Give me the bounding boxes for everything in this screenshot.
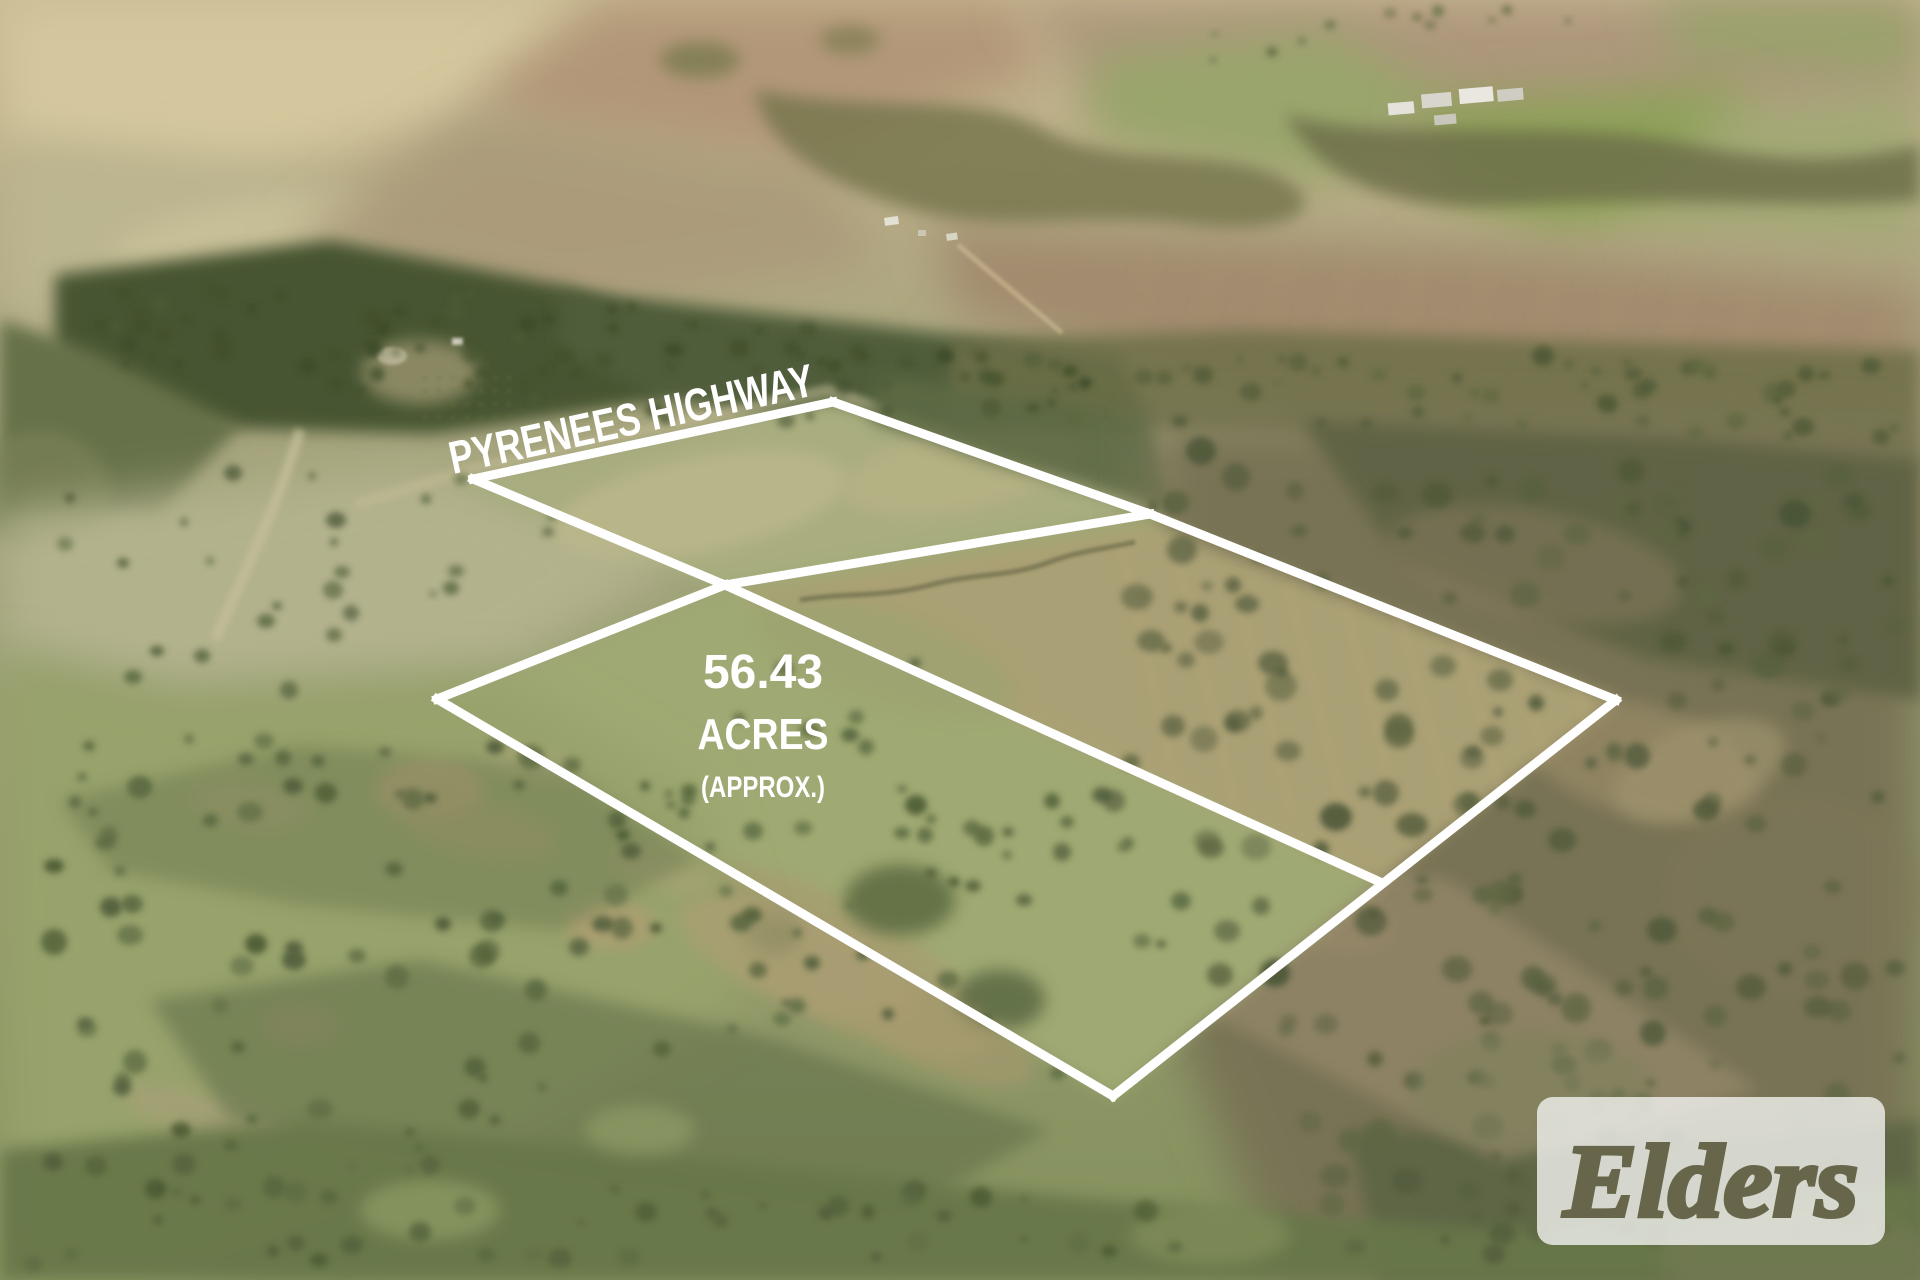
svg-text:Elders: Elders: [1562, 1124, 1858, 1239]
svg-text:ACRES: ACRES: [698, 710, 829, 759]
svg-text:(APPROX.): (APPROX.): [701, 771, 825, 804]
svg-text:56.43: 56.43: [703, 646, 823, 699]
